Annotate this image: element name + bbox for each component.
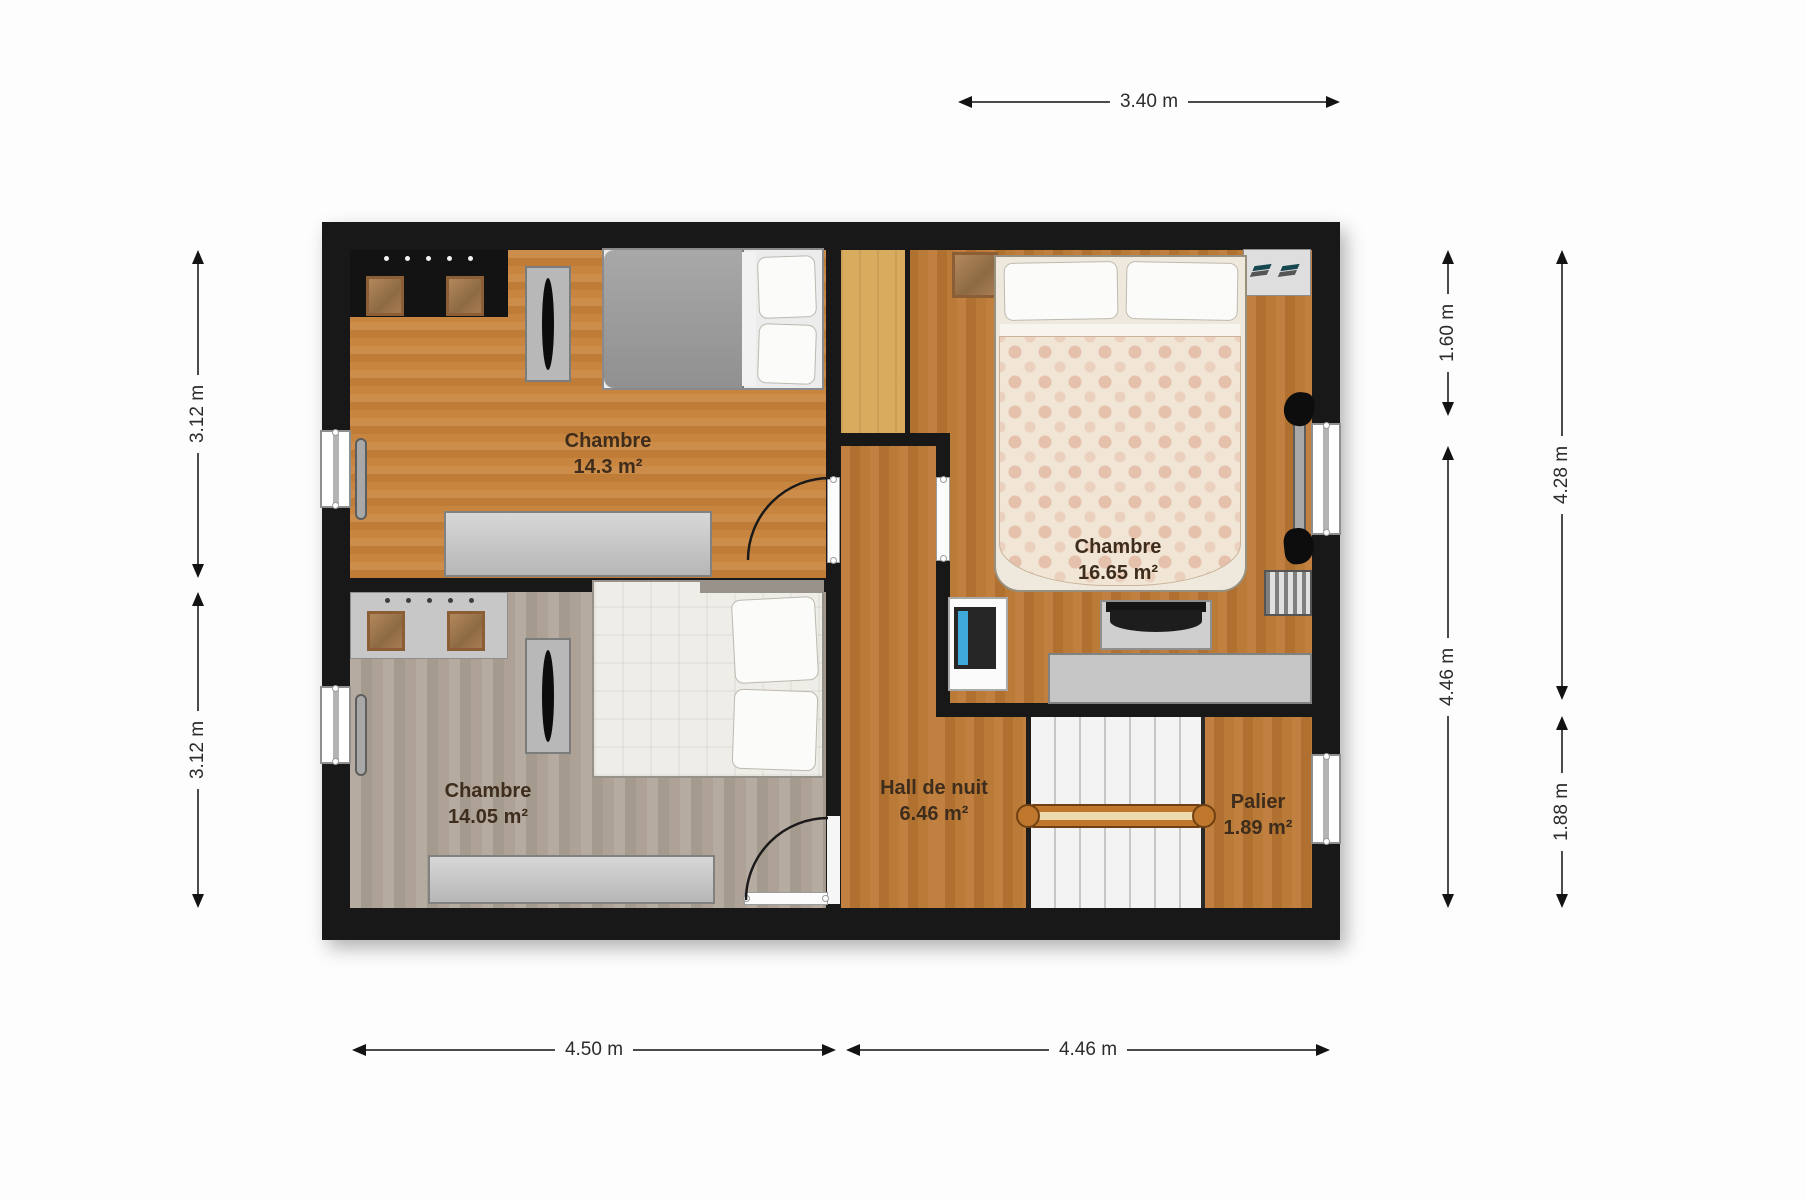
room-label-chambre-1: Chambre 14.3 m² <box>500 428 716 480</box>
radiator-vent <box>1264 570 1312 616</box>
dimension-value: 3.12 m <box>187 375 209 453</box>
folded-clothes-icon <box>1252 264 1271 271</box>
room-label-hall: Hall de nuit 6.46 m² <box>826 775 1042 827</box>
long-dresser <box>1048 653 1312 704</box>
dresser-with-mirror <box>525 266 571 382</box>
dimension-value: 3.40 m <box>1110 91 1188 113</box>
tv-screen-curve <box>1110 610 1202 632</box>
dimension-value: 1.88 m <box>1551 773 1573 851</box>
sheet-fold <box>1000 324 1240 336</box>
room-name: Chambre <box>1010 534 1226 560</box>
shelf-unit <box>1243 249 1311 296</box>
dimension-value: 4.46 m <box>1049 1039 1127 1061</box>
floor-hall <box>841 446 950 908</box>
room-name: Palier <box>1150 789 1366 815</box>
sheet-fold <box>742 252 756 386</box>
room-area: 1.89 m² <box>1150 815 1366 841</box>
room-label-palier: Palier 1.89 m² <box>1150 789 1366 841</box>
nightstand-frame <box>952 252 998 298</box>
pillow <box>757 255 817 319</box>
window <box>320 430 351 508</box>
wall-niche-side <box>905 250 910 433</box>
pillow <box>1004 261 1119 321</box>
dimension-value: 1.60 m <box>1437 294 1459 372</box>
wall-bedroom-bottom <box>936 703 1340 717</box>
dimension-value: 4.50 m <box>555 1039 633 1061</box>
window <box>1311 423 1341 535</box>
wall-niche-stub <box>841 433 950 446</box>
room-name: Chambre <box>500 428 716 454</box>
long-dresser <box>444 511 712 577</box>
wardrobe-black <box>350 250 508 317</box>
hanger-dots <box>385 598 474 603</box>
floor-plan-canvas: Chambre 14.3 m² Chambre 16.65 m² Chambre… <box>0 0 1806 1200</box>
pillow <box>1126 261 1239 321</box>
picture-frame <box>447 611 485 651</box>
door-swing-arc <box>742 472 834 564</box>
room-label-chambre-3: Chambre 14.05 m² <box>380 778 596 830</box>
door-opening <box>936 477 950 561</box>
dresser-with-mirror <box>525 638 571 754</box>
long-dresser <box>428 855 715 904</box>
dimension-value: 3.12 m <box>187 711 209 789</box>
mirror <box>542 650 554 742</box>
wardrobe-gray <box>350 592 508 659</box>
room-name: Hall de nuit <box>826 775 1042 801</box>
folded-clothes-icon <box>1280 264 1299 271</box>
room-area: 14.3 m² <box>500 454 716 480</box>
duvet-gray <box>604 250 744 388</box>
pillow <box>732 689 819 772</box>
dimension-value: 4.46 m <box>1437 638 1459 716</box>
picture-frame <box>446 276 484 316</box>
mirror <box>542 278 554 370</box>
room-area: 6.46 m² <box>826 801 1042 827</box>
pillow <box>757 323 817 385</box>
picture-frame <box>367 611 405 651</box>
room-label-chambre-2: Chambre 16.65 m² <box>1010 534 1226 586</box>
pillow <box>731 596 819 684</box>
room-area: 14.05 m² <box>380 804 596 830</box>
window <box>320 686 351 764</box>
room-name: Chambre <box>380 778 596 804</box>
computer-screen <box>958 611 968 665</box>
radiator <box>1293 415 1306 545</box>
room-area: 16.65 m² <box>1010 560 1226 586</box>
radiator <box>355 694 367 776</box>
door-swing-arc <box>740 812 832 904</box>
floor-closet-niche <box>841 250 908 433</box>
dimension-value: 4.28 m <box>1551 436 1573 514</box>
picture-frame <box>366 276 404 316</box>
hanger-dots <box>384 256 473 261</box>
radiator <box>355 438 367 520</box>
headboard <box>700 580 824 593</box>
